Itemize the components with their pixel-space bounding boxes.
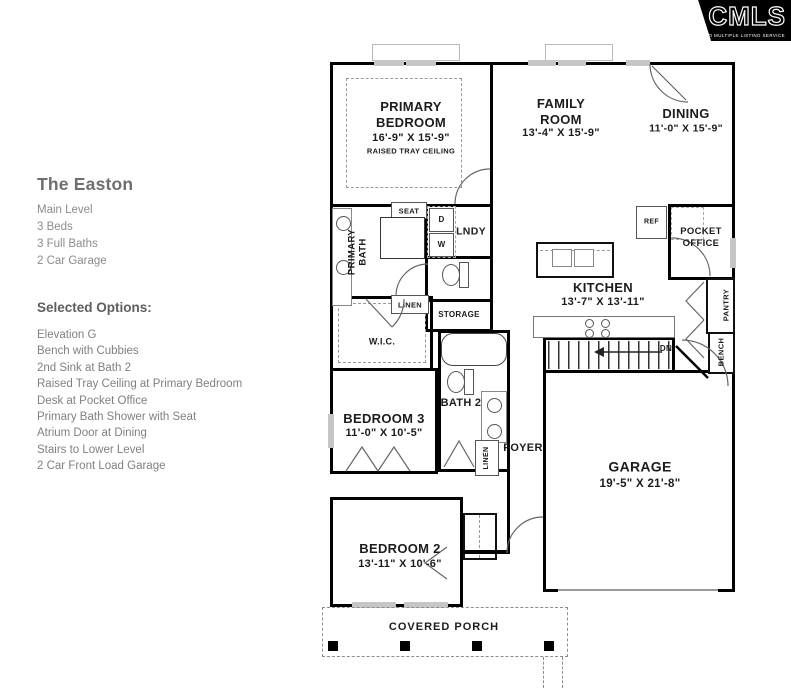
window [558,60,586,66]
porch-column [472,641,482,651]
option-item: 2 Car Front Load Garage [37,458,322,474]
option-item: Desk at Pocket Office [37,393,322,409]
tray-ceiling-note: RAISED TRAY CEILING [336,146,486,155]
linen-closet: LINEN [391,295,429,314]
cooktop-burner [585,319,594,328]
eave-detail [545,44,613,61]
stair-treads [548,341,670,369]
primary-bedroom-label: PRIMARY BEDROOM [351,99,471,132]
refrigerator: REF [636,206,667,239]
stairs-dn-label: DN [660,344,672,354]
pantry-cabinet [706,278,735,334]
bathtub [441,333,507,366]
sink [487,398,502,413]
window [406,60,436,66]
toilet [442,264,460,286]
bath2-label: BATH 2 [440,397,482,411]
dining-label: DINING [641,106,731,122]
cmls-logo-text: CMLS [708,1,786,32]
dining-dims: 11'-0" X 15'-9" [626,122,746,135]
kitchen-label: KITCHEN [553,280,653,296]
floor-plan-sheet: The Easton Main Level 3 Beds 3 Full Bath… [0,0,791,690]
bench-label: BENCH [717,332,726,372]
dryer-label: D [438,215,444,225]
porch-column [400,641,410,651]
bedroom2-dims: 13'-11" X 10'-6" [330,558,470,572]
window [626,60,650,66]
option-item: Elevation G [37,327,322,343]
plan-baths: 3 Full Baths [37,236,322,253]
window [374,60,404,66]
cooktop-burner [601,319,610,328]
foyer-label: FOYER [493,442,553,456]
plan-garage-count: 2 Car Garage [37,253,322,270]
porch-column [328,641,338,651]
bedroom2-label: BEDROOM 2 [330,541,470,557]
toilet-tank [459,262,469,288]
wic-label: W.I.C. [352,336,412,347]
plan-info-panel: The Easton Main Level 3 Beds 3 Full Bath… [37,174,322,475]
plan-beds: 3 Beds [37,219,322,236]
covered-porch-label: COVERED PORCH [354,621,534,635]
front-wall-segment [463,550,510,554]
linen-label: LINEN [398,300,422,309]
eave-detail [372,44,460,61]
pantry-door-chevron [686,320,704,358]
front-walkway [543,657,563,688]
ref-label: REF [644,218,659,227]
plan-title: The Easton [37,174,322,195]
toilet [447,371,465,393]
cmls-logo: CMLS CONSOLIDATED MULTIPLE LISTING SERVI… [683,0,791,41]
laundry-label: LNDY [446,225,496,238]
bedroom3-dims: 11'-0" X 10'-5" [314,427,454,441]
cmls-logo-tagline: CONSOLIDATED MULTIPLE LISTING SERVICE [672,33,785,38]
family-room-dims: 13'-4" X 15'-9" [501,127,621,141]
primary-bedroom-dims: 16'-9" X 15'-9" [336,132,486,146]
selected-options-heading: Selected Options: [37,300,322,315]
option-item: Raised Tray Ceiling at Primary Bedroom [37,376,322,392]
seat-label: SEAT [399,206,420,215]
linen-foyer-label: LINEN [483,441,491,475]
window [528,60,556,66]
option-item: 2nd Sink at Bath 2 [37,360,322,376]
pantry-door-chevron [686,282,704,320]
option-item: Atrium Door at Dining [37,425,322,441]
garage-dims: 19'-5" X 21'-8" [570,477,710,491]
island-sink [552,249,572,267]
cooktop-burner [601,329,610,338]
front-door [507,517,543,553]
island-sink [574,249,594,267]
storage-label: STORAGE [429,310,489,320]
sink [487,424,502,439]
option-item: Bench with Cubbies [37,343,322,359]
kitchen-dims: 13'-7" X 13'-11" [533,296,673,310]
garage-label: GARAGE [585,458,695,476]
family-room-label: FAMILY ROOM [521,96,601,129]
shower [380,217,425,259]
option-item: Stairs to Lower Level [37,442,322,458]
bedroom3-label: BEDROOM 3 [314,411,454,427]
option-item: Primary Bath Shower with Seat [37,409,322,425]
cooktop-burner [585,329,594,338]
porch-column [544,641,554,651]
pocket-office-label: POCKET OFFICE [672,226,730,250]
washer-label: W [438,240,446,250]
plan-level: Main Level [37,202,322,219]
toilet-tank [464,369,474,395]
primary-bath-label: PRIMARY BATH [347,222,370,282]
window [730,238,736,268]
garage-door-line [558,589,718,591]
pantry-label: PANTRY [722,283,731,327]
